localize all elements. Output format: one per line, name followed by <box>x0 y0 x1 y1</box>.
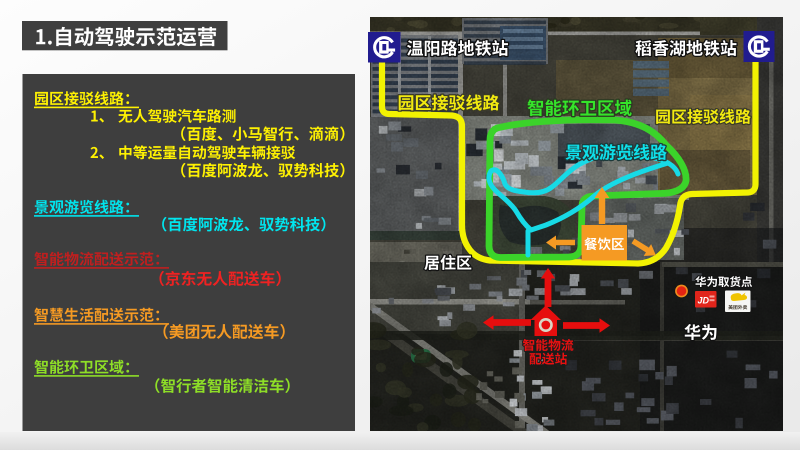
svg-text:JD: JD <box>698 296 710 306</box>
